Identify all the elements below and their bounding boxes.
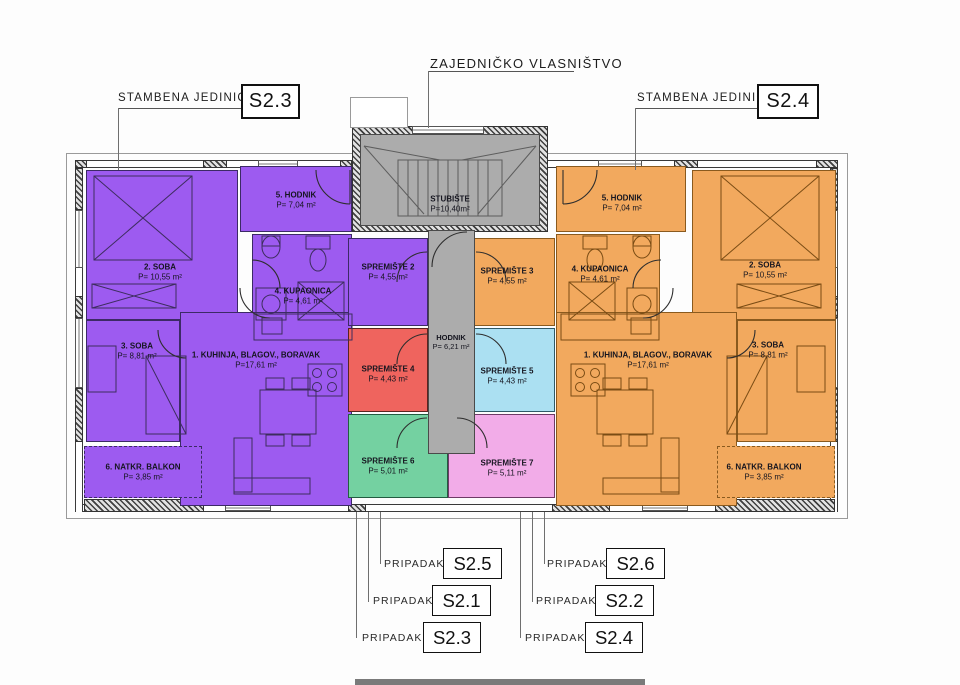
leader-line-s21: [368, 512, 369, 602]
leader-line-s22: [532, 512, 533, 602]
label-right-kupaonica: 4. KUPAONICA P= 4,61 m²: [572, 264, 629, 283]
leader-line-s25: [380, 512, 381, 564]
pripadak-label: PRIPADAK: [362, 632, 422, 644]
room-right-kuhinja: [556, 312, 737, 506]
leader-underline: [428, 71, 574, 72]
label-left-hodnik: 5. HODNIK P= 7,04 m²: [276, 190, 316, 209]
entry-porch: [350, 97, 408, 128]
room-left-kuhinja: [180, 312, 352, 506]
label-left-soba2: 2. SOBA P= 10,55 m²: [138, 262, 182, 281]
pripadak-code-s26: S2.6: [606, 548, 665, 579]
label-spremiste-3: SPREMIŠTE 3 P= 4,55 m²: [481, 266, 534, 285]
wall-pillar: [75, 160, 87, 168]
right-unit-label: STAMBENA JEDINICA: [637, 92, 775, 104]
label-right-hodnik: 5. HODNIK P= 7,04 m²: [602, 193, 642, 212]
wall-pillar: [75, 388, 83, 442]
leader-line-left-unit: [118, 108, 119, 170]
common-ownership-label: ZAJEDNIČKO VLASNIŠTVO: [430, 56, 623, 71]
left-unit-code: S2.3: [241, 84, 300, 119]
label-left-kupaonica: 4. KUPAONICA P= 4,61 m²: [275, 286, 332, 305]
pripadak-label: PRIPADAK: [373, 595, 433, 607]
label-right-soba2: 2. SOBA P= 10,55 m²: [743, 260, 787, 279]
leader-line-s26: [544, 512, 545, 564]
label-left-balkon: 6. NATKR. BALKON P= 3,85 m²: [106, 462, 181, 481]
leader-line-right-unit: [635, 108, 636, 170]
leader-line-s23: [356, 512, 357, 638]
wall-pillar: [203, 160, 227, 168]
leader-underline: [635, 108, 757, 109]
pripadak-label: PRIPADAK: [384, 558, 444, 570]
storage-spremiste-2: [348, 238, 428, 326]
label-stubiste: STUBIŠTE P=10,40m²: [430, 194, 470, 213]
pripadak-label: PRIPADAK: [536, 595, 596, 607]
label-spremiste-2: SPREMIŠTE 2 P= 4,55 m²: [362, 262, 415, 281]
label-right-balkon: 6. NATKR. BALKON P= 3,85 m²: [727, 462, 802, 481]
pripadak-code-s25: S2.5: [443, 548, 502, 579]
leader-line-s24: [520, 512, 521, 638]
pripadak-code-s23: S2.3: [423, 622, 481, 653]
window: [75, 318, 83, 388]
staircase-entry-window: [412, 126, 484, 134]
leader-underline: [118, 108, 241, 109]
floor-plan-page: ZAJEDNIČKO VLASNIŠTVO STAMBENA JEDINICA …: [0, 0, 960, 685]
leader-line-common: [428, 71, 429, 128]
pripadak-code-s24: S2.4: [585, 622, 643, 653]
label-left-soba3: 3. SOBA P= 8,81 m²: [117, 341, 156, 360]
label-spremiste-5: SPREMIŠTE 5 P= 4,43 m²: [481, 366, 534, 385]
wall-pillar: [816, 160, 838, 168]
label-spremiste-4: SPREMIŠTE 4 P= 4,43 m²: [362, 364, 415, 383]
window: [75, 210, 83, 268]
wall-pillar: [75, 296, 83, 318]
pripadak-label: PRIPADAK: [547, 558, 607, 570]
right-unit-code: S2.4: [757, 84, 819, 119]
wall-pillar: [75, 168, 83, 210]
room-right-soba3: [737, 320, 836, 442]
room-right-soba2: [692, 170, 836, 320]
label-spremiste-7: SPREMIŠTE 7 P= 5,11 m²: [481, 458, 534, 477]
label-right-soba3: 3. SOBA P= 8,81 m²: [748, 340, 787, 359]
room-left-soba3: [86, 320, 180, 442]
room-left-soba2: [86, 170, 238, 320]
label-spremiste-6: SPREMIŠTE 6 P= 5,01 m²: [362, 456, 415, 475]
pripadak-code-s21: S2.1: [432, 585, 491, 616]
page-edge-strip: [355, 679, 645, 685]
label-hodnik-central: HODNIK P= 6,21 m²: [433, 333, 470, 351]
left-unit-label: STAMBENA JEDINICA: [118, 92, 256, 104]
label-right-kuhinja: 1. KUHINJA, BLAGOV., BORAVAK P=17,61 m²: [584, 350, 712, 369]
pripadak-code-s22: S2.2: [595, 585, 654, 616]
room-left-kupaonica: [252, 234, 352, 322]
label-left-kuhinja: 1. KUHINJA, BLAGOV., BORAVAK P=17,61 m²: [192, 350, 320, 369]
pripadak-label: PRIPADAK: [525, 632, 585, 644]
